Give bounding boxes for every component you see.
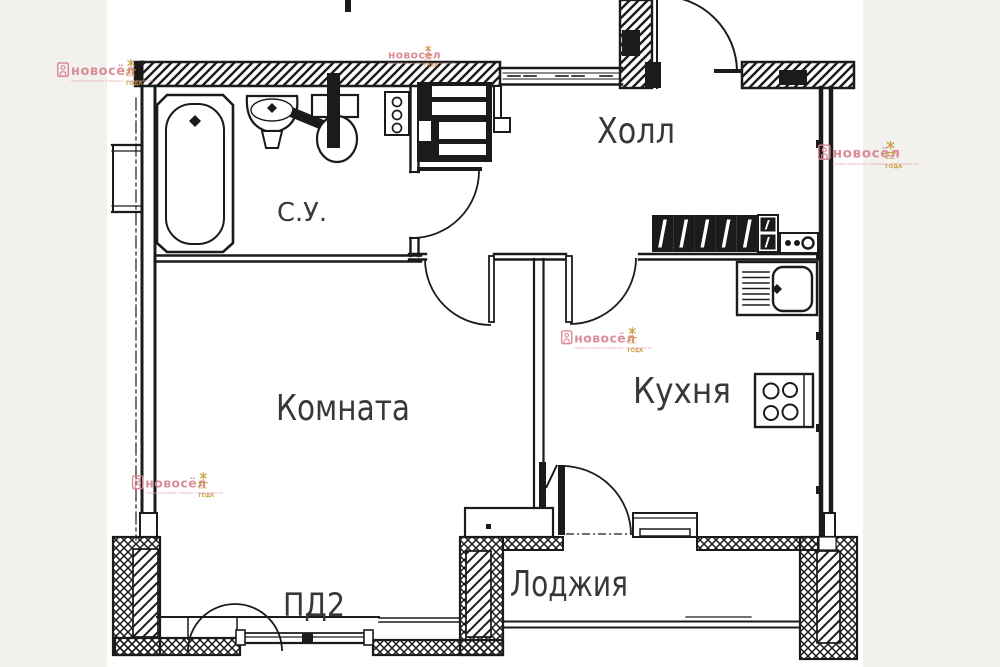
watermark-brand: новосёл — [145, 476, 206, 490]
balcony-unit-label: ПД2 — [283, 586, 345, 624]
bathtub — [157, 95, 233, 252]
hall-wardrobe — [652, 215, 778, 252]
room-label-loggia: Лоджия — [510, 564, 628, 605]
floor-plan-page: ГОДА — [0, 0, 1000, 667]
room-label-bathroom: С.У. — [277, 198, 327, 228]
watermark-brand: новосёл — [388, 48, 441, 61]
watermark-brand: новосёл — [574, 331, 635, 345]
floor-plan-drawing: ГОДА — [0, 0, 1000, 667]
watermark-tagline: Профессиональные операции с недвижимость… — [388, 61, 456, 65]
meter-box — [385, 92, 409, 135]
watermark-tagline: Профессиональные операции с недвижимость… — [833, 162, 919, 166]
room-label-hall: Холл — [597, 111, 675, 152]
wall-top-right — [742, 62, 854, 88]
room-label-living-room: Комната — [276, 388, 410, 429]
room-label-kitchen: Кухня — [633, 371, 731, 412]
watermark-brand: новосёл — [71, 64, 136, 79]
kitchen-sink — [737, 262, 817, 315]
riser-pipe — [327, 73, 340, 148]
stove — [755, 374, 813, 427]
wall-stub-top — [345, 0, 351, 12]
counter-unit — [780, 233, 818, 253]
